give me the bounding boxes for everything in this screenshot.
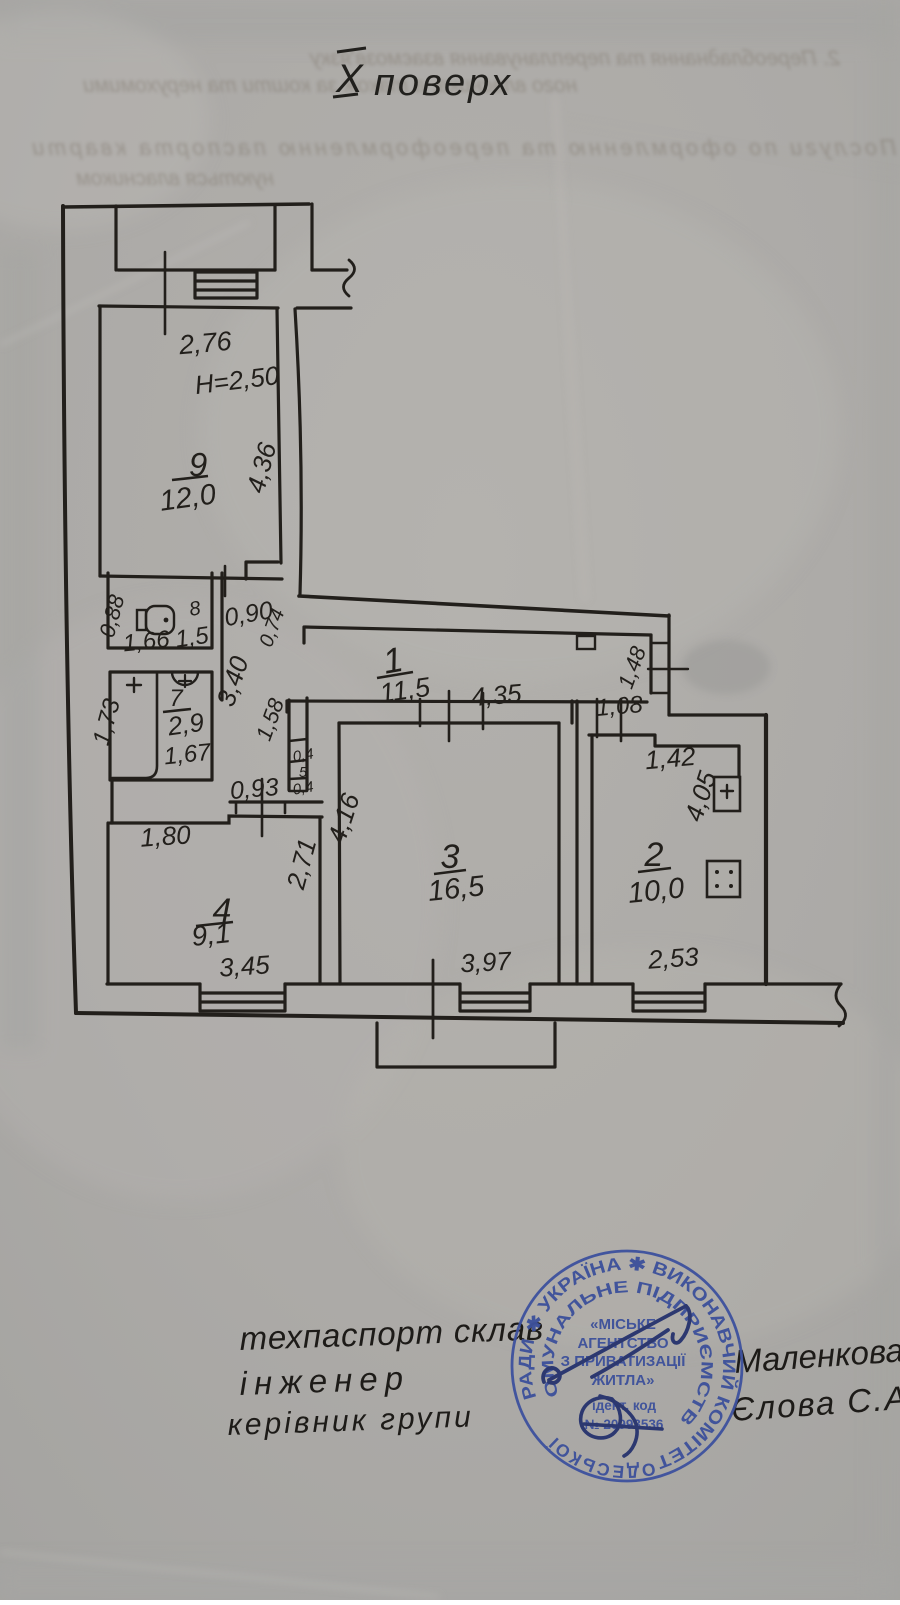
svg-text:інженер: інженер [239,1359,411,1402]
svg-text:0,4: 0,4 [291,745,314,765]
svg-text:4,35: 4,35 [470,678,524,712]
svg-text:0,93: 0,93 [229,773,280,805]
svg-text:3,45: 3,45 [218,949,271,982]
svg-text:16,5: 16,5 [426,870,486,908]
svg-text:1,5: 1,5 [174,622,211,653]
svg-text:1,80: 1,80 [139,819,192,852]
svg-text:нуються власником: нуються власником [76,167,273,190]
svg-text:0,4: 0,4 [291,778,314,798]
svg-text:3,97: 3,97 [459,946,513,979]
svg-text:«МІСЬКЕ: «МІСЬКЕ [590,1316,656,1333]
svg-text:ідент. код: ідент. код [592,1398,657,1413]
svg-text:поверх: поверх [374,62,513,104]
svg-text:7: 7 [169,685,184,712]
svg-text:1,66: 1,66 [122,626,172,658]
svg-text:2,53: 2,53 [646,941,700,975]
svg-text:1,08: 1,08 [595,691,645,722]
svg-text:10,0: 10,0 [626,872,685,910]
svg-text:3. Послуги по оформленню та пе: 3. Послуги по оформленню та переоформлен… [29,135,900,160]
svg-text:2,76: 2,76 [177,326,234,361]
svg-text:1,67: 1,67 [163,739,214,771]
svg-text:1,42: 1,42 [644,741,698,775]
